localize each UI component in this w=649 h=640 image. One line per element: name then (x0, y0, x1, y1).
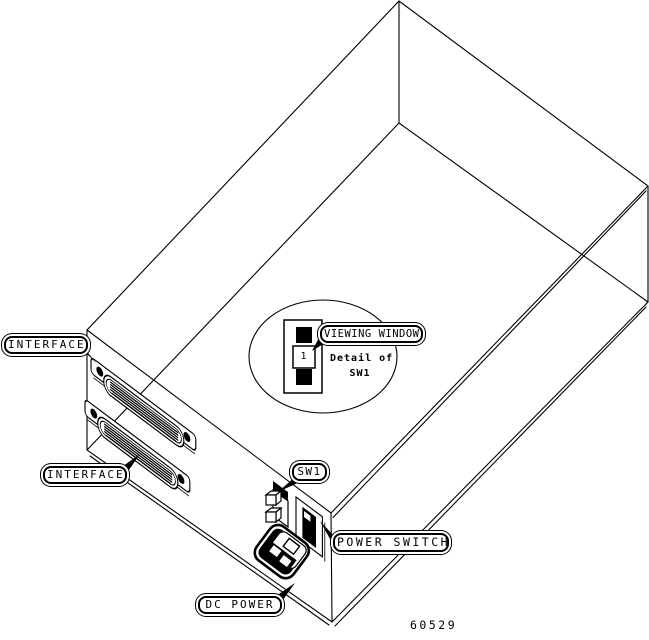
sw1-detail-top-block (296, 327, 312, 343)
sw1-actuator-button (266, 508, 281, 522)
line-art (0, 0, 649, 640)
figure-rear-view-diagram: INTERFACE INTERFACE SW1 VIEWING WINDOW P… (0, 0, 649, 640)
callout-sw1: SW1 (292, 463, 327, 481)
callout-viewing-window: VIEWING WINDOW (320, 325, 423, 343)
detail-caption-line1: Detail of (330, 353, 390, 364)
chassis-edge-doubles (90, 191, 646, 626)
callout-interface-bottom: INTERFACE (43, 466, 127, 484)
chassis-front-edges (87, 186, 648, 622)
callout-dc-power: DC POWER (198, 596, 282, 614)
callout-interface-top: INTERFACE (4, 336, 88, 354)
chassis-hidden-edges (87, 1, 648, 450)
sw1-actuator-button (266, 491, 281, 505)
sw1-detail-bottom-block (296, 369, 312, 385)
callout-power-switch: POWER SWITCH (333, 533, 449, 552)
detail-caption-line2: SW1 (330, 368, 390, 379)
figure-number: 60529 (410, 618, 457, 632)
sw1-window-value: 1 (293, 347, 314, 367)
